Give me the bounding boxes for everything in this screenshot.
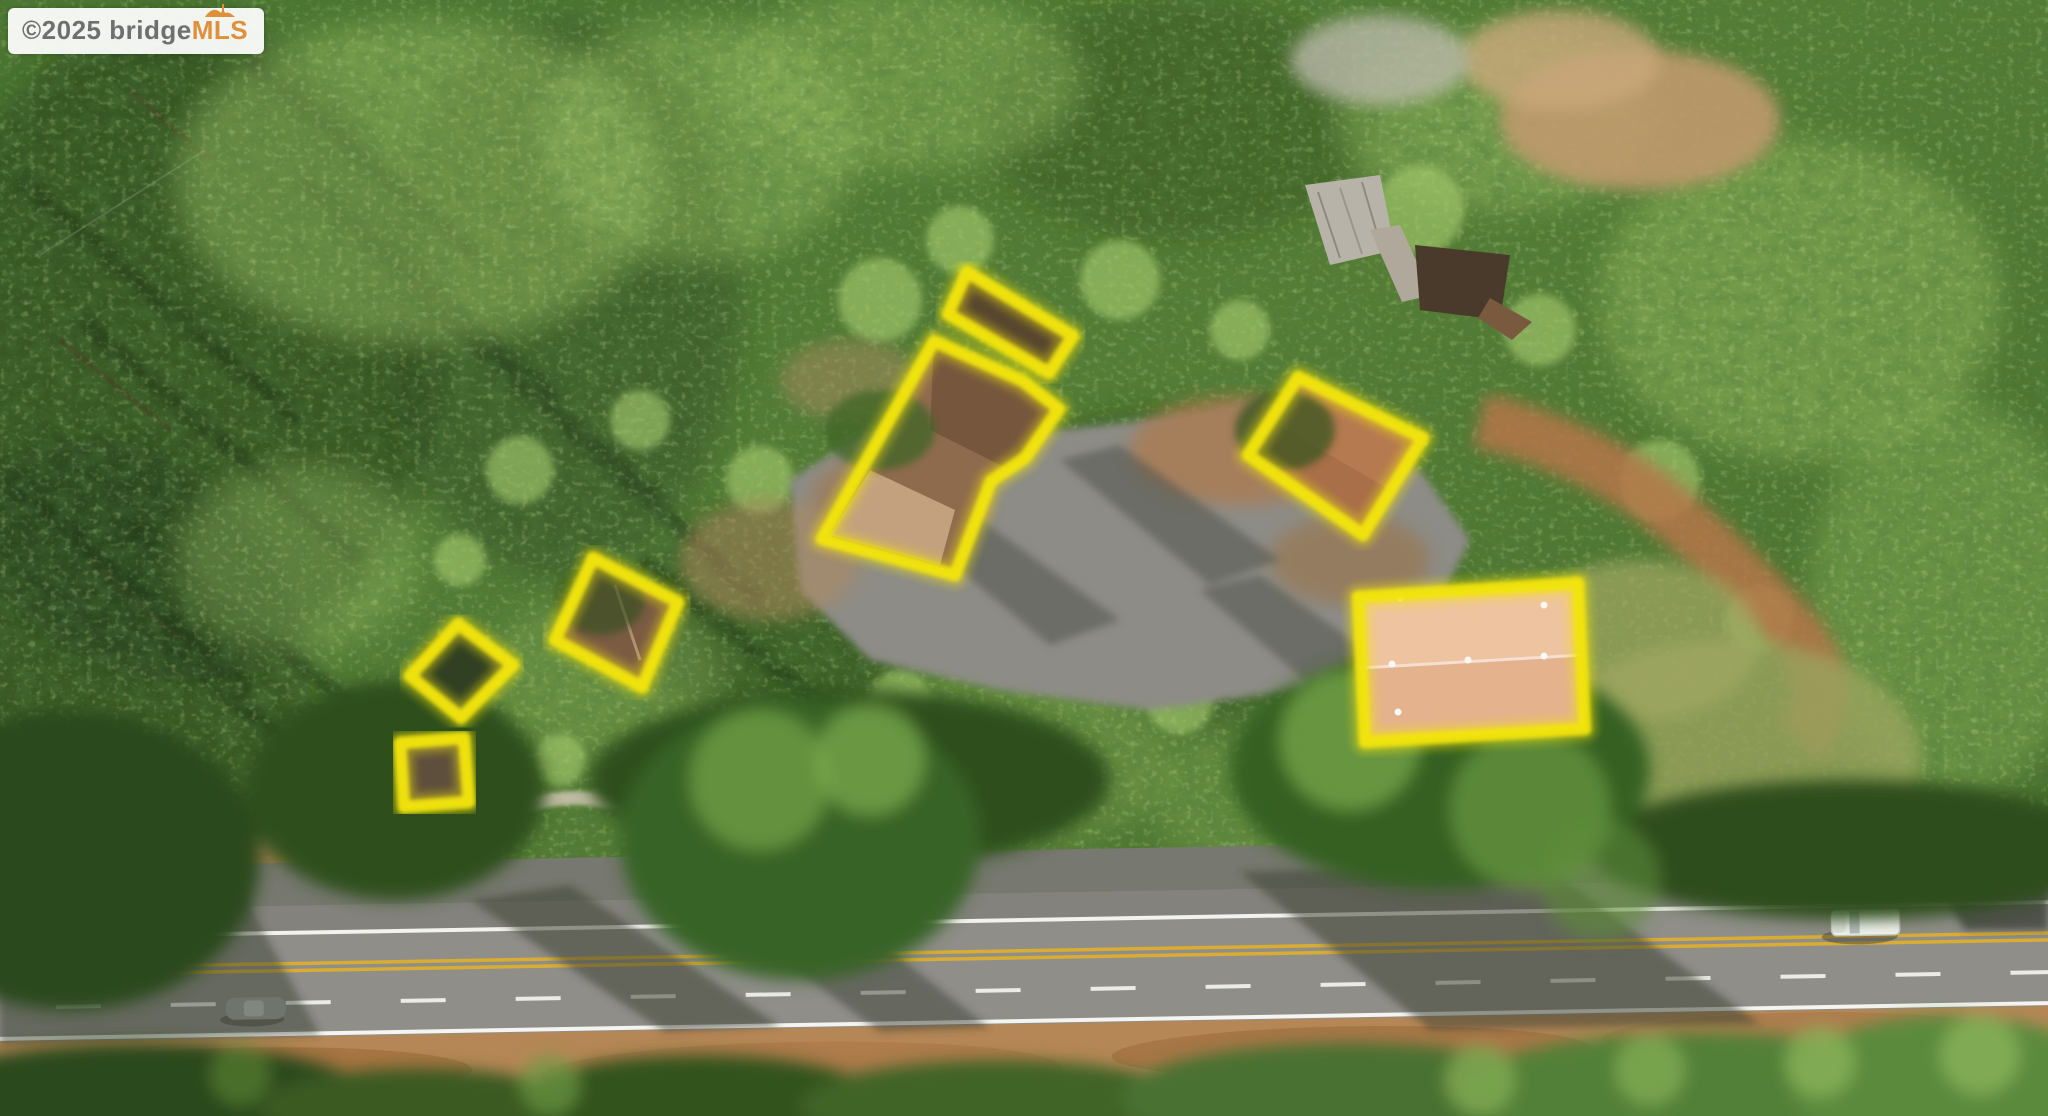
brand-text: bridge [109, 15, 191, 46]
brand-suffix-text: MLS [192, 15, 248, 45]
aerial-photo-canvas [0, 0, 2048, 1116]
aerial-photo: ©2025 bridge MLS [0, 0, 2048, 1116]
mls-watermark: ©2025 bridge MLS [8, 8, 264, 54]
bridge-logo-icon [204, 3, 236, 18]
copyright-text: ©2025 [22, 15, 109, 46]
